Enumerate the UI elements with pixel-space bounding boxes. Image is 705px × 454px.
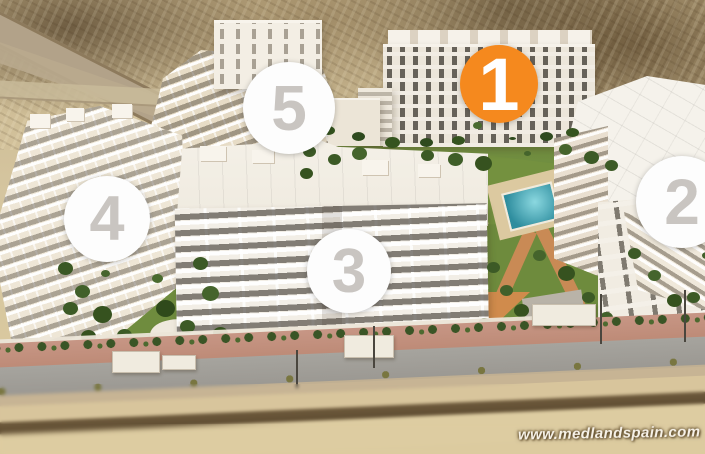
street-light	[684, 290, 686, 342]
building-marker-4[interactable]: 4	[64, 176, 150, 262]
aerial-render-scene: 1 2 3 4 5 www.medlandspain.com	[0, 0, 705, 454]
watermark-url: www.medlandspain.com	[517, 423, 700, 443]
building-3-penthouse	[252, 150, 274, 163]
building-4-penthouse	[30, 114, 50, 128]
building-marker-1[interactable]: 1	[460, 45, 538, 123]
marker-2-number: 2	[664, 165, 700, 239]
marker-4-number: 4	[89, 183, 124, 255]
entrance-gate	[344, 335, 394, 358]
building-4-penthouse	[112, 104, 132, 118]
building-marker-5[interactable]: 5	[243, 62, 335, 154]
garden-trees-south	[487, 262, 500, 273]
street-light	[600, 294, 602, 344]
entrance-gate	[162, 355, 196, 370]
street-light	[373, 326, 375, 368]
entrance-gate	[532, 304, 596, 326]
marker-3-number: 3	[332, 236, 366, 307]
building-3-penthouse	[418, 164, 440, 177]
building-marker-3[interactable]: 3	[307, 229, 391, 313]
building-4-penthouse	[66, 108, 84, 121]
garden-trees-west	[58, 262, 73, 275]
building-3-penthouse	[362, 160, 388, 175]
entrance-gate	[112, 351, 160, 373]
building-1-annex	[328, 98, 380, 146]
marker-5-number: 5	[271, 71, 307, 145]
marker-1-number: 1	[478, 42, 519, 127]
building-3-penthouse	[200, 146, 226, 161]
street-light	[296, 350, 298, 388]
